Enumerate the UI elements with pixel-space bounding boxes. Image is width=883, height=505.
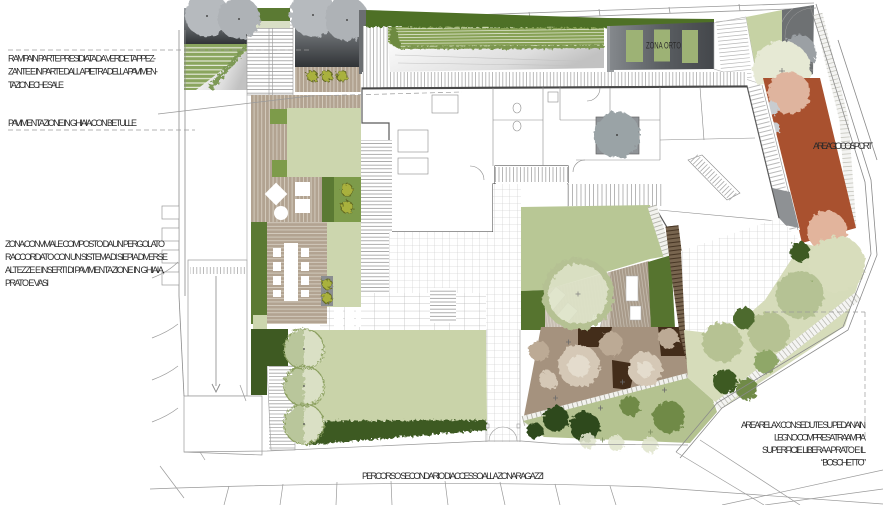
svg-text:RACCORDATO CON UN SISTEMA DI S: RACCORDATO CON UN SISTEMA DI SIEPI A DIV… — [5, 252, 168, 262]
svg-text:SUPERFICIE LIBERA A PRATO E IL: SUPERFICIE LIBERA A PRATO E IL — [762, 445, 866, 455]
svg-text:PERCORSO SECONDARIO DI ACCESSO: PERCORSO SECONDARIO DI ACCESSO ALLA ZONA… — [362, 471, 544, 481]
svg-text:LEGNO COMPRESA TRA AMPIA: LEGNO COMPRESA TRA AMPIA — [774, 433, 866, 443]
svg-text:RAMPA IN PARTE PRESIDIATA DA V: RAMPA IN PARTE PRESIDIATA DA VERDE TAPPE… — [8, 54, 156, 64]
svg-text:ZANTE E IN PARTE DALLA PIETRA: ZANTE E IN PARTE DALLA PIETRA DELLA PAVI… — [8, 67, 158, 77]
svg-text:“BOSCHETTO”: “BOSCHETTO” — [821, 458, 866, 468]
svg-text:TAZIONE CHE SALE: TAZIONE CHE SALE — [8, 80, 64, 90]
svg-text:AREA GIOCO/SPORT: AREA GIOCO/SPORT — [813, 141, 873, 152]
svg-text:PRATO E VASI: PRATO E VASI — [5, 278, 49, 288]
svg-text:ALTEZZE E INSERTI DI PAVIMENTA: ALTEZZE E INSERTI DI PAVIMENTAZIONE IN G… — [5, 265, 165, 275]
svg-text:ZONA ORTO: ZONA ORTO — [646, 41, 681, 51]
svg-text:PAVIMENTAZIONE IN GHIAIA CON B: PAVIMENTAZIONE IN GHIAIA CON BETULLE — [8, 118, 137, 128]
svg-text:AREA RELAX CON SEDUTE SU PEDAN: AREA RELAX CON SEDUTE SU PEDANA IN — [741, 420, 866, 430]
svg-text:ZONA CONVIVIALE COMPOSTO DA UN: ZONA CONVIVIALE COMPOSTO DA UN PERGOLATO — [5, 239, 165, 249]
